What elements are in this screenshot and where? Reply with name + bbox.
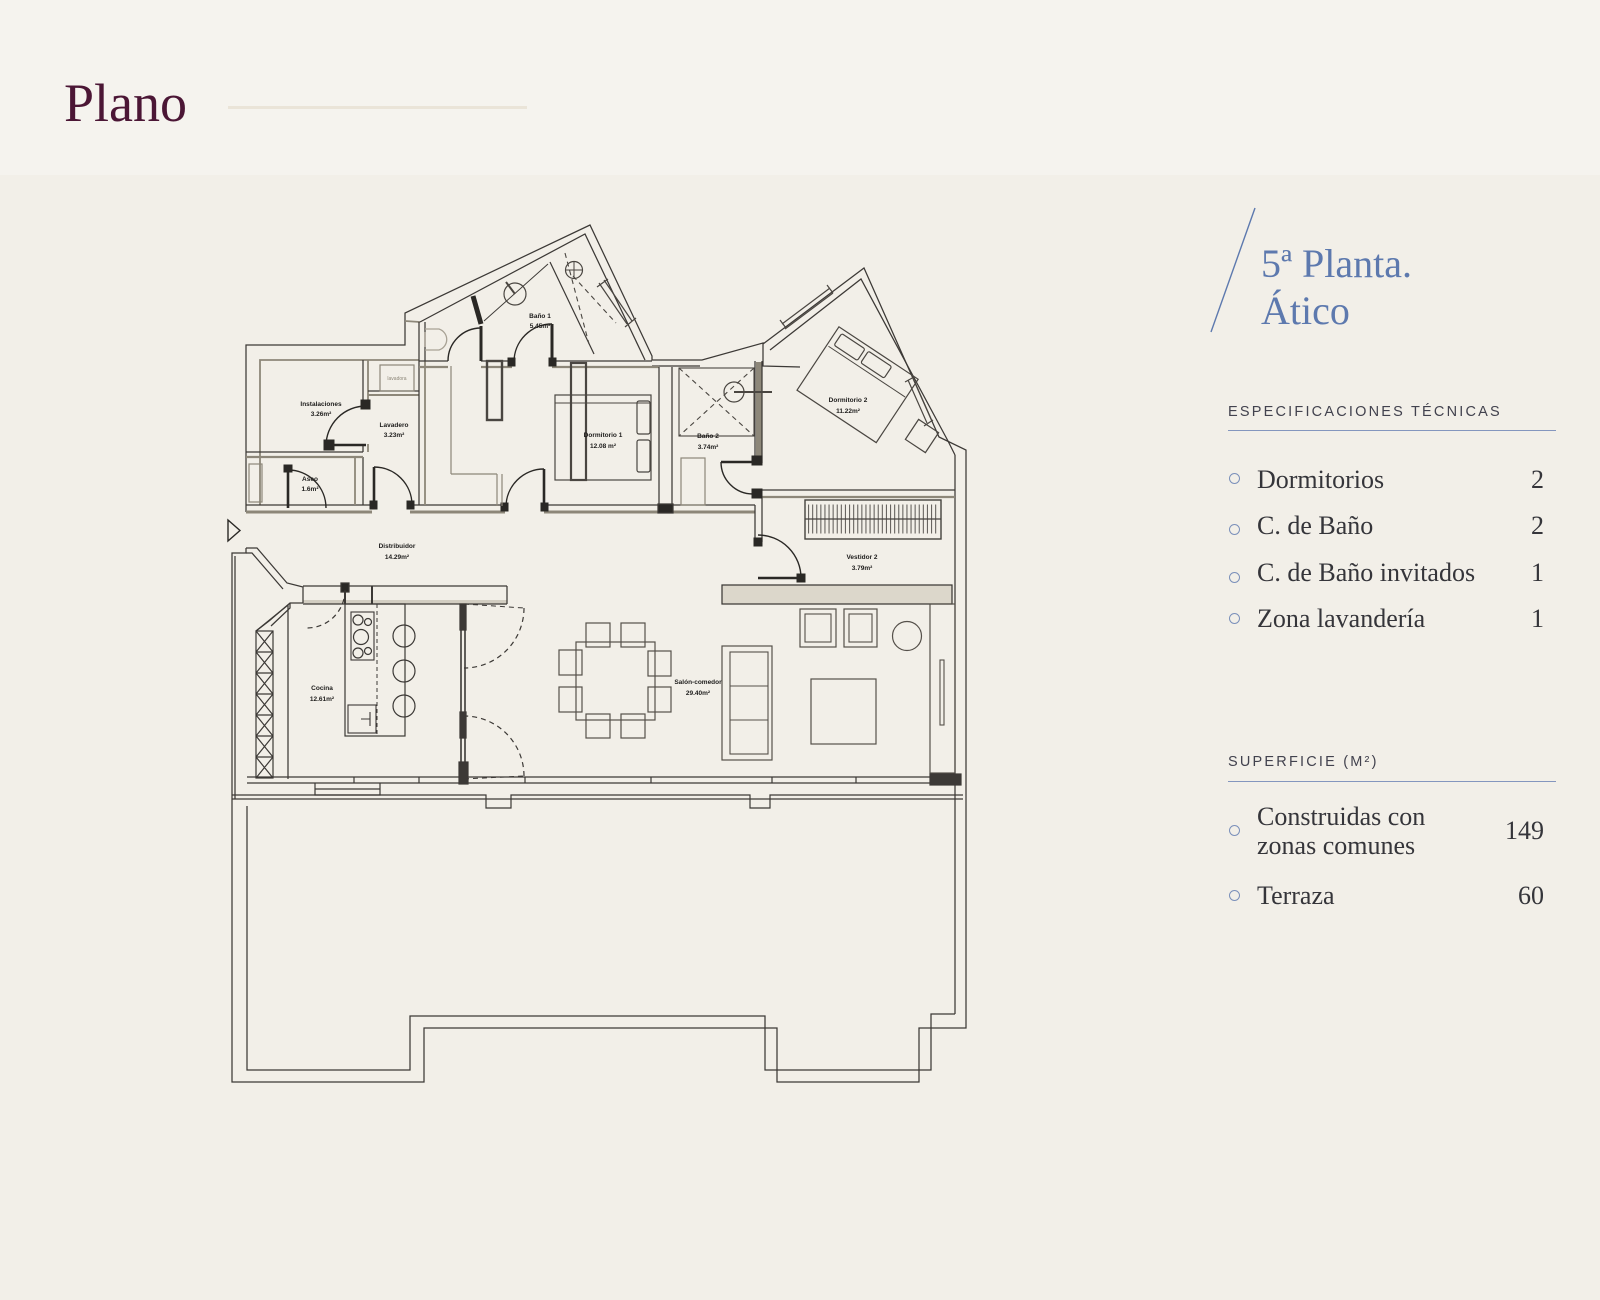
svg-text:Dormitorio 1: Dormitorio 1 — [584, 432, 623, 439]
svg-text:Baño 1: Baño 1 — [529, 313, 551, 320]
svg-text:Instalaciones: Instalaciones — [300, 401, 342, 408]
svg-text:1.6m²: 1.6m² — [302, 486, 320, 493]
svg-text:Salón-comedor: Salón-comedor — [674, 679, 722, 686]
svg-text:12.08 m²: 12.08 m² — [590, 443, 617, 450]
svg-text:Cocina: Cocina — [311, 685, 333, 692]
svg-text:Vestidor 2: Vestidor 2 — [846, 554, 877, 561]
svg-text:11.22m²: 11.22m² — [836, 408, 861, 415]
svg-text:3.26m²: 3.26m² — [311, 411, 332, 418]
svg-text:3.74m²: 3.74m² — [698, 444, 719, 451]
svg-text:3.79m²: 3.79m² — [852, 565, 873, 572]
svg-text:Distribuidor: Distribuidor — [379, 543, 416, 550]
svg-text:Aseo: Aseo — [302, 476, 318, 483]
svg-text:Baño 2: Baño 2 — [697, 433, 719, 440]
svg-text:5.45m²: 5.45m² — [530, 323, 551, 330]
svg-text:12.61m²: 12.61m² — [310, 696, 335, 703]
svg-text:14.29m²: 14.29m² — [385, 554, 410, 561]
svg-text:Dormitorio 2: Dormitorio 2 — [829, 397, 868, 404]
svg-text:29.40m²: 29.40m² — [686, 690, 711, 697]
svg-text:lavadora: lavadora — [387, 376, 406, 382]
svg-text:Lavadero: Lavadero — [380, 422, 409, 429]
svg-text:3.23m²: 3.23m² — [384, 432, 405, 439]
